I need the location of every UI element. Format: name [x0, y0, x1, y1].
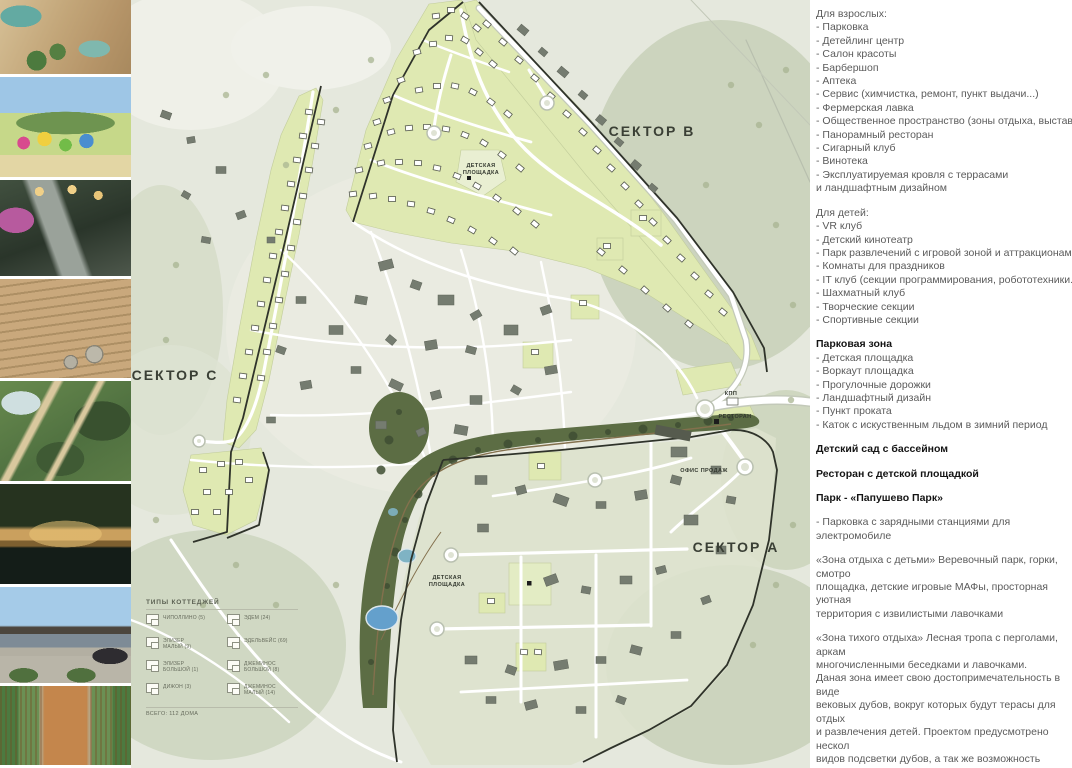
sector-b-label: СЕКТОР B	[609, 123, 696, 139]
existing-building	[620, 576, 632, 584]
tree	[783, 67, 789, 73]
existing-building	[454, 424, 468, 435]
park-tree	[475, 447, 481, 453]
list-item: - Парк развлечений с игровой зоной и атт…	[816, 247, 1072, 260]
list-item: - Фермерская лавка	[816, 102, 1072, 115]
list-item: и ландшафтным дизайном	[816, 182, 1072, 195]
tree	[790, 302, 796, 308]
list-item: - Спортивные секции	[816, 314, 1072, 327]
cottage-footprint-icon	[227, 614, 240, 624]
tree	[333, 582, 339, 588]
existing-building	[684, 515, 698, 525]
cottage-house	[305, 167, 313, 173]
cottage-house	[434, 84, 441, 89]
legend-item: ДИЖОН (3)	[146, 683, 217, 701]
park-tree	[377, 466, 386, 475]
park-tree	[605, 429, 611, 435]
cottage-house	[604, 244, 611, 249]
roundabout-center	[434, 626, 440, 632]
cottage-footprint-icon	[227, 660, 240, 670]
cottage-house	[263, 277, 271, 283]
cottage-house	[405, 125, 412, 131]
existing-building	[187, 136, 196, 143]
cottage-house	[311, 143, 319, 149]
park-tree	[504, 440, 513, 449]
existing-building	[478, 524, 489, 532]
legend-item: ДЖЕМИНОС БОЛЬШОЙ (8)	[227, 660, 298, 678]
tree	[728, 82, 734, 88]
existing-building	[201, 236, 211, 243]
roundabout-center	[544, 100, 550, 106]
cottage-house	[451, 83, 459, 89]
existing-building	[267, 417, 276, 423]
tree	[773, 582, 779, 588]
kindergarten-line: Детский сад с бассейном	[816, 443, 1072, 456]
cottage-house	[414, 160, 421, 165]
legend-total: ВСЕГО: 112 ДОМА	[146, 707, 298, 717]
list-item: - Панорамный ресторан	[816, 129, 1072, 142]
legend-label: ДИЖОН (3)	[163, 683, 191, 690]
legend-label: ЭДЕМ (24)	[244, 614, 270, 621]
list-item: - Аптека	[816, 75, 1072, 88]
cottage-house	[214, 510, 221, 515]
legend-label: ДЖЕМИНОС БОЛЬШОЙ (8)	[244, 660, 279, 674]
cottage-house	[204, 490, 211, 495]
existing-building	[726, 496, 736, 504]
cottage-house	[245, 349, 253, 355]
adults-list: Для взрослых: - Парковка - Детейлинг цен…	[816, 8, 1072, 196]
list-item: - Эксплуатируемая кровля с террасами	[816, 169, 1072, 182]
tree	[173, 262, 179, 268]
tree	[223, 92, 229, 98]
cottage-house	[293, 157, 301, 163]
restaurant-label: РЕСТОРАН	[718, 414, 751, 420]
park-tree	[402, 517, 408, 523]
existing-building	[296, 297, 306, 304]
legend-item: ЭЛИЗЕР БОЛЬШОЙ (1)	[146, 660, 217, 678]
cottage-house	[538, 464, 545, 469]
legend-item: ДЖЕМИНОС МАЛЫЙ (14)	[227, 683, 298, 701]
kpp-gate	[727, 398, 738, 405]
paragraph-kids-zone: «Зона отдыха с детьми» Веревочный парк, …	[816, 554, 1072, 621]
park-tree	[368, 659, 374, 665]
list-item: - Винотека	[816, 155, 1072, 168]
existing-building	[465, 656, 477, 664]
list-item: - VR клуб	[816, 220, 1072, 233]
park-tree	[396, 409, 402, 415]
legend-item: ЭДЕМ (24)	[227, 614, 298, 632]
cottage-house	[317, 119, 325, 125]
cottage-house	[293, 219, 301, 225]
park-tree	[639, 425, 648, 434]
cottage-house	[415, 87, 423, 93]
cottage-house	[257, 301, 265, 307]
existing-building	[596, 502, 606, 509]
playground-label-a-line2: ПЛОЩАДКА	[429, 582, 465, 588]
cottage-house	[520, 649, 527, 655]
existing-building	[671, 447, 687, 457]
cottage-house	[407, 201, 415, 207]
list-item: - Салон красоты	[816, 48, 1072, 61]
existing-building	[581, 586, 591, 594]
tree	[756, 122, 762, 128]
cottage-footprint-icon	[227, 637, 240, 647]
legend-label: ЧИПОЛЛИНО (5)	[163, 614, 205, 621]
photo-night-waterside-deck-render	[0, 484, 131, 584]
cottage-house	[369, 193, 377, 199]
cottage-house	[226, 490, 233, 495]
cottage-house	[275, 297, 283, 303]
existing-building	[486, 697, 496, 704]
pond-large	[366, 606, 398, 630]
existing-building	[671, 632, 681, 639]
cottage-house	[257, 375, 265, 381]
cottage-house	[432, 13, 440, 19]
playground-label-b-line1: ДЕТСКАЯ	[466, 163, 495, 169]
cottage-house	[236, 460, 243, 465]
playground-label-b-line2: ПЛОЩАДКА	[463, 170, 499, 176]
pond-tiny	[388, 508, 398, 516]
cottage-house	[200, 468, 207, 473]
tree	[233, 562, 239, 568]
existing-building	[424, 340, 437, 351]
photo-aerial-pond-park-render	[0, 381, 131, 481]
tree	[788, 397, 794, 403]
list-item: - Прогулочные дорожки	[816, 379, 1072, 392]
sales-office-label: ОФИС ПРОДАЖ	[680, 468, 727, 474]
cottage-footprint-icon	[146, 614, 159, 624]
roundabout-center	[741, 463, 749, 471]
sector-a-label: СЕКТОР A	[693, 539, 780, 555]
legend-item: ЭДЕЛЬВЕЙС (69)	[227, 637, 298, 655]
cottage-house	[275, 229, 283, 235]
legend-item: ЧИПОЛЛИНО (5)	[146, 614, 217, 632]
list-item: - Барбершоп	[816, 62, 1072, 75]
cottage-house	[389, 197, 396, 202]
existing-building	[354, 295, 367, 305]
playground-marker-a	[527, 581, 532, 586]
restaurant-line: Ресторан с детской площадкой	[816, 468, 1072, 481]
cottage-house	[640, 216, 647, 221]
cottage-house	[377, 160, 385, 166]
cottage-house	[251, 325, 259, 331]
cottage-footprint-icon	[146, 660, 159, 670]
existing-building	[300, 380, 312, 390]
legend-title: ТИПЫ КОТТЕДЖЕЙ	[146, 599, 298, 610]
cottage-house	[448, 8, 455, 13]
tree	[153, 517, 159, 523]
cottage-house	[580, 301, 587, 306]
existing-building	[634, 490, 647, 501]
list-item: - IT клуб (секции программирования, робо…	[816, 274, 1072, 287]
existing-building	[576, 707, 586, 714]
existing-building	[470, 396, 482, 405]
list-item: - Пункт проката	[816, 405, 1072, 418]
list-item: - Шахматный клуб	[816, 287, 1072, 300]
cottage-house	[445, 35, 452, 41]
tree	[750, 642, 756, 648]
existing-building	[329, 326, 343, 335]
cottage-house	[263, 349, 271, 355]
cottage-house	[281, 271, 289, 277]
list-item: - Детская площадка	[816, 352, 1072, 365]
photo-wooden-tower-render	[0, 686, 131, 765]
list-item: - Ландшафтный дизайн	[816, 392, 1072, 405]
existing-building	[544, 365, 557, 375]
roundabout-center	[431, 130, 437, 136]
existing-building	[504, 325, 518, 335]
cottage-house	[287, 245, 295, 251]
tree	[368, 57, 374, 63]
existing-building	[351, 367, 361, 374]
park-tree	[569, 432, 578, 441]
cottage-house	[305, 109, 313, 115]
existing-building	[475, 476, 487, 485]
existing-building	[438, 295, 454, 305]
adults-heading: Для взрослых:	[816, 8, 1072, 21]
existing-building	[376, 421, 387, 429]
cottage-house	[299, 133, 307, 139]
cottage-footprint-icon	[227, 683, 240, 693]
list-item: - Каток с искуственным льдом в зимний пе…	[816, 419, 1072, 432]
cottage-house	[192, 510, 199, 515]
cottage-footprint-icon	[146, 683, 159, 693]
roundabout-center	[700, 404, 710, 414]
cottage-house	[287, 181, 295, 187]
sector-c-label: СЕКТОР C	[132, 367, 219, 383]
park-tree	[675, 422, 681, 428]
masterplan-poster: СЕКТОР B СЕКТОР C СЕКТОР A ДЕТСКАЯ ПЛОЩА…	[0, 0, 1072, 768]
park-heading: Парковая зона	[816, 338, 1072, 351]
cottage-house	[349, 191, 357, 197]
photo-kids-playground-render	[0, 77, 131, 177]
list-item: - Сигарный клуб	[816, 142, 1072, 155]
list-item: - Комнаты для праздников	[816, 260, 1072, 273]
tree	[790, 522, 796, 528]
park-tree	[385, 436, 394, 445]
photo-night-park-stairs-render	[0, 180, 131, 276]
tree	[703, 182, 709, 188]
cottage-house	[429, 41, 436, 47]
cottage-house	[488, 599, 495, 604]
list-item: - Детейлинг центр	[816, 35, 1072, 48]
cottage-house	[246, 478, 253, 483]
photo-strip	[0, 0, 131, 768]
existing-building	[216, 167, 226, 174]
photo-aerial-playground-render	[0, 0, 131, 74]
kpp-label: КПП	[725, 391, 737, 397]
park-name-line: Парк - «Папушево Парк»	[816, 492, 1072, 505]
park-tree	[535, 437, 541, 443]
cottage-house	[355, 167, 363, 173]
legend-label: ЭЛИЗЕР БОЛЬШОЙ (1)	[163, 660, 198, 674]
tree	[263, 72, 269, 78]
kids-heading: Для детей:	[816, 207, 1072, 220]
playground-marker-b	[467, 176, 471, 180]
description-panel: Для взрослых: - Парковка - Детейлинг цен…	[810, 0, 1072, 768]
roundabout-center	[448, 552, 454, 558]
cottage-house	[269, 253, 277, 259]
cottage-house	[218, 462, 225, 467]
legend-item: ЭЛИЗЕР МАЛЫЙ (9)	[146, 637, 217, 655]
cottage-house	[532, 350, 539, 355]
cottage-house	[433, 165, 441, 171]
tree	[283, 162, 289, 168]
cottage-house	[269, 323, 277, 329]
existing-building	[267, 237, 275, 243]
playground-label-a-line1: ДЕТСКАЯ	[432, 575, 461, 581]
list-item: - Творческие секции	[816, 301, 1072, 314]
list-item: - Детский кинотеатр	[816, 234, 1072, 247]
list-item: - Общественное пространство (зоны отдыха…	[816, 115, 1072, 128]
roundabout-center	[197, 439, 201, 443]
tree	[333, 107, 339, 113]
legend-label: ЭДЕЛЬВЕЙС (69)	[244, 637, 288, 644]
cottage-footprint-icon	[146, 637, 159, 647]
photo-sales-office-building-render	[0, 587, 131, 683]
cottage-types-legend: ТИПЫ КОТТЕДЖЕЙ ЧИПОЛЛИНО (5) ЭДЕМ (24) Э…	[146, 599, 298, 717]
cottage-house	[233, 397, 241, 403]
paragraph-quiet-zone: «Зона тихого отдыха» Лесная тропа с перг…	[816, 632, 1072, 768]
legend-grid: ЧИПОЛЛИНО (5) ЭДЕМ (24) ЭЛИЗЕР МАЛЫЙ (9)…	[146, 614, 298, 701]
list-item: - Парковка	[816, 21, 1072, 34]
legend-label: ДЖЕМИНОС МАЛЫЙ (14)	[244, 683, 276, 697]
legend-label: ЭЛИЗЕР МАЛЫЙ (9)	[163, 637, 191, 651]
cottage-house	[239, 373, 247, 379]
tree	[163, 337, 169, 343]
tree	[773, 222, 779, 228]
list-item: - Сервис (химчистка, ремонт, пункт выдач…	[816, 88, 1072, 101]
cottage-house	[442, 126, 450, 132]
kids-list: Для детей: - VR клуб - Детский кинотеатр…	[816, 207, 1072, 328]
roundabout-center	[592, 477, 598, 483]
paragraph-parking: - Парковка с зарядными станциями для эле…	[816, 516, 1072, 543]
cottage-house	[534, 649, 541, 655]
list-item: - Воркаут площадка	[816, 365, 1072, 378]
cottage-house	[395, 159, 402, 164]
photo-amphitheater-terraces-render	[0, 279, 131, 378]
cottage-house	[281, 205, 289, 211]
cottage-house	[299, 193, 307, 199]
park-zone-list: Парковая зона - Детская площадка - Ворка…	[816, 338, 1072, 432]
existing-building	[596, 657, 606, 664]
